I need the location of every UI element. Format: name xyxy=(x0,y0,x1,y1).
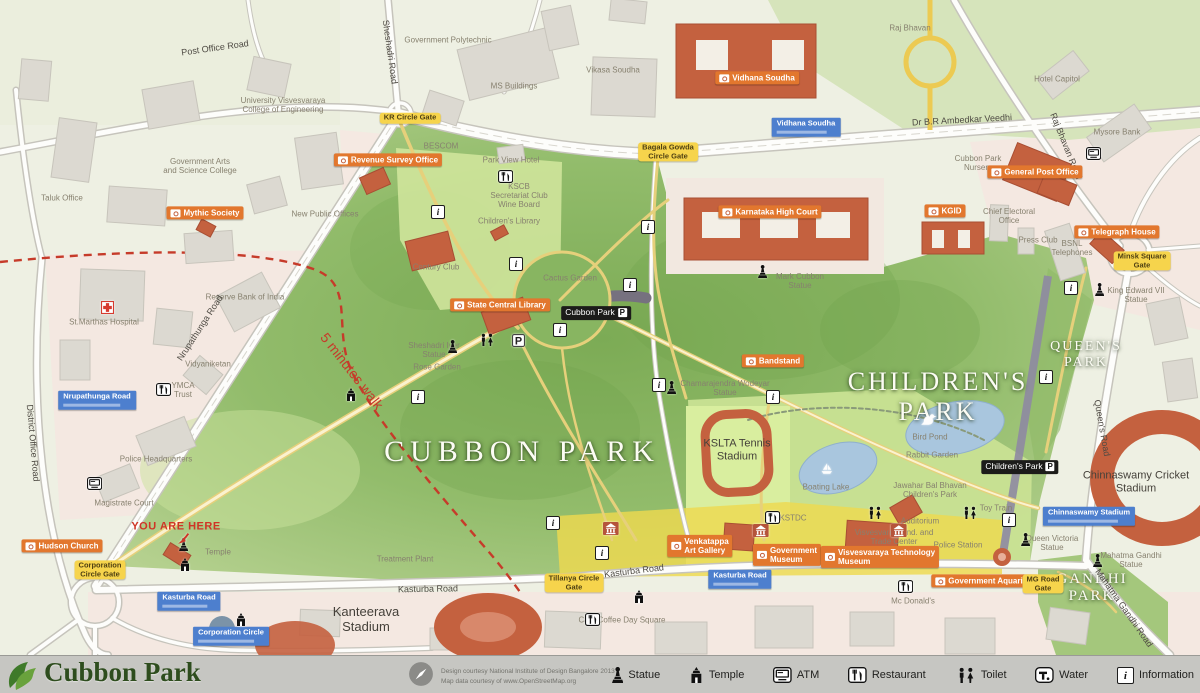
credits-text: Design courtesy National Institute of De… xyxy=(441,667,615,687)
restaurant-icon xyxy=(156,383,171,396)
water-icon xyxy=(1035,667,1054,683)
area-label: KSLTA TennisStadium xyxy=(703,437,770,462)
parking-label: Children's Park xyxy=(981,460,1058,474)
atm-icon xyxy=(1086,147,1101,160)
atm-icon xyxy=(773,667,792,683)
place-label: Hotel Capitol xyxy=(1034,74,1080,83)
credits-line-2: Map data courtesy of www.OpenStreetMap.o… xyxy=(441,677,615,687)
place-label: Bird Pond xyxy=(912,432,947,441)
place-label: KSTDC xyxy=(779,513,806,522)
temple-icon xyxy=(689,667,704,683)
atm-icon xyxy=(87,477,102,490)
area-label: Chinnaswamy CricketStadium xyxy=(1083,469,1189,494)
temple-icon xyxy=(345,388,357,401)
information-icon: i xyxy=(766,390,780,404)
camera-icon xyxy=(991,168,1001,176)
cross-icon xyxy=(101,301,114,314)
poi-label: State Central Library xyxy=(450,298,550,311)
statue-icon xyxy=(1095,283,1104,296)
legend-label: Toilet xyxy=(981,669,1007,681)
parking-label: Cubbon Park xyxy=(561,306,631,320)
legend-label: Restaurant xyxy=(872,669,926,681)
camera-icon xyxy=(338,156,348,164)
poi-label: Revenue Survey Office xyxy=(334,153,442,166)
camera-icon xyxy=(757,551,767,559)
poi-label: Telegraph House xyxy=(1074,225,1159,238)
camera-icon xyxy=(929,207,939,215)
camera-icon xyxy=(26,542,36,550)
poi-label: Vidhana Soudha xyxy=(715,71,799,84)
poi-label: Mythic Society xyxy=(166,206,243,219)
information-icon: i xyxy=(1039,370,1053,384)
place-label: Rabbit Garden xyxy=(906,450,958,459)
temple-icon xyxy=(179,558,191,571)
museum-icon xyxy=(603,522,619,535)
cubbon-park-map-page: CUBBON PARKCHILDREN'SPARKQUEEN'SPARKGAND… xyxy=(0,0,1200,693)
legend-item-statue: Statue xyxy=(612,667,660,683)
museum-icon xyxy=(891,524,907,537)
camera-icon xyxy=(746,357,756,365)
credits-line-1: Design courtesy National Institute of De… xyxy=(441,667,615,677)
map-viewport: CUBBON PARKCHILDREN'SPARKQUEEN'SPARKGAND… xyxy=(0,0,1200,655)
information-icon: i xyxy=(652,378,666,392)
camera-icon xyxy=(722,208,732,216)
place-label: Magistrate Court xyxy=(94,498,153,507)
information-icon: i xyxy=(1064,281,1078,295)
statue-icon xyxy=(448,340,457,353)
legend-item-information: iInformation xyxy=(1117,666,1194,685)
place-label: Rose Garden xyxy=(413,362,461,371)
place-label: BSNLTelephones xyxy=(1052,239,1093,257)
compass-icon xyxy=(408,661,434,692)
statue-icon xyxy=(758,265,767,278)
legend-item-restaurant: Restaurant xyxy=(848,667,925,683)
poi-label: Hudson Church xyxy=(22,539,103,552)
camera-icon xyxy=(671,542,681,550)
transit-label: Nrupathunga Road xyxy=(58,391,136,410)
place-label: Taluk Office xyxy=(41,193,83,202)
information-icon: i xyxy=(553,323,567,337)
restaurant-icon xyxy=(765,511,780,524)
poi-label: Bandstand xyxy=(742,354,804,367)
statue-icon xyxy=(1093,554,1102,567)
place-label: Boating Lake xyxy=(803,482,850,491)
camera-icon xyxy=(719,74,729,82)
place-label: Auditorium xyxy=(901,516,939,525)
poi-label: KGID xyxy=(925,204,966,217)
gate-label: Tillanya CircleGate xyxy=(545,573,604,592)
map-title: Cubbon Park xyxy=(44,657,201,688)
place-label: Police Station xyxy=(934,540,983,549)
poi-label: Karnataka High Court xyxy=(718,205,821,218)
transit-label: Kasturba Road xyxy=(157,592,220,611)
restaurant-icon xyxy=(585,613,600,626)
poi-label: Visvesvaraya TechnologyMuseum xyxy=(821,546,939,568)
information-icon: i xyxy=(411,390,425,404)
svg-text:P: P xyxy=(515,335,522,347)
road-label: Kasturba Road xyxy=(398,583,458,594)
leaf-logo-icon xyxy=(4,658,44,693)
place-label: Chamarajendra WodeyarStatue xyxy=(680,379,769,397)
footer-bar: Cubbon Park Design courtesy National Ins… xyxy=(0,655,1200,693)
gate-label: KR Circle Gate xyxy=(380,113,441,124)
place-label: Raj Bhavan xyxy=(889,23,930,32)
legend-label: Information xyxy=(1139,669,1194,681)
park-title: CUBBON PARK xyxy=(384,435,660,470)
information-icon: i xyxy=(1002,513,1016,527)
information-icon: i xyxy=(509,257,523,271)
restaurant-icon xyxy=(898,580,913,593)
map-annotation: YOU ARE HERE xyxy=(131,521,220,534)
place-label: Queen VictoriaStatue xyxy=(1026,534,1079,552)
information-icon: i xyxy=(641,220,655,234)
legend: StatueTempleATMRestaurantToiletWateriInf… xyxy=(612,656,1194,693)
boat-icon xyxy=(819,462,835,475)
road-label: Post Office Road xyxy=(181,38,250,58)
road-label: Kasturba Road xyxy=(604,562,665,580)
duck-icon xyxy=(920,413,938,426)
poi-label: GovernmentMuseum xyxy=(753,544,821,566)
museum-icon xyxy=(753,524,769,537)
place-label: Children's Library xyxy=(478,216,540,225)
place-label: Chief ElectoralOffice xyxy=(983,207,1035,225)
camera-icon xyxy=(170,209,180,217)
legend-item-toilet: Toilet xyxy=(955,667,1007,683)
information-icon: i xyxy=(1117,666,1134,685)
legend-item-temple: Temple xyxy=(689,667,744,683)
transit-label: Corporation Circle xyxy=(193,627,269,646)
place-label: MS Buildings xyxy=(491,81,538,90)
legend-label: ATM xyxy=(797,669,819,681)
place-label: Police Headquarters xyxy=(120,454,192,463)
arrow-icon xyxy=(177,532,190,545)
legend-label: Temple xyxy=(709,669,744,681)
park-title: QUEEN'SPARK xyxy=(1050,339,1122,371)
gate-label: MG RoadGate xyxy=(1023,574,1064,593)
camera-icon xyxy=(454,301,464,309)
place-label: Vikasa Soudha xyxy=(586,65,640,74)
legend-item-atm: ATM xyxy=(773,667,819,683)
place-label: New Public Offices xyxy=(292,209,359,218)
place-label: Mc Donald's xyxy=(891,596,935,605)
place-label: KSCBSecretariat ClubWine Board xyxy=(490,182,547,210)
information-icon: i xyxy=(431,205,445,219)
gate-label: Bagala GowdaCircle Gate xyxy=(638,142,698,161)
place-label: Government Polytechnic xyxy=(404,35,491,44)
camera-icon xyxy=(935,577,945,585)
place-label: Temple xyxy=(205,547,231,556)
restaurant-icon xyxy=(848,667,867,683)
map-labels-layer: CUBBON PARKCHILDREN'SPARKQUEEN'SPARKGAND… xyxy=(0,0,1200,655)
road-label: Sheshadri Road xyxy=(380,19,399,84)
legend-item-water: Water xyxy=(1035,667,1088,683)
parking-icon: P xyxy=(512,334,525,347)
transit-label: Kasturba Road xyxy=(708,570,771,589)
place-label: Mysore Bank xyxy=(1094,127,1141,136)
gate-label: Minsk SquareGate xyxy=(1114,251,1171,270)
toilet-icon xyxy=(961,506,978,519)
toilet-icon xyxy=(955,667,976,683)
road-label: Dr B.R Ambedkar Veedhi xyxy=(912,112,1012,128)
poi-label: VenkatappaArt Gallery xyxy=(667,535,732,557)
poi-label: General Post Office xyxy=(987,165,1082,178)
transit-label: Chinnaswamy Stadium xyxy=(1043,507,1135,526)
area-label: KanteeravaStadium xyxy=(333,605,400,635)
place-label: Century Club xyxy=(413,262,460,271)
place-label: Toy Train xyxy=(980,503,1012,512)
place-label: King Edward VIIStatue xyxy=(1107,286,1164,304)
place-label: Cactus Garden xyxy=(543,273,597,282)
road-label: District Office Road xyxy=(24,404,41,482)
place-label: St.Marthas Hospital xyxy=(69,317,139,326)
legend-label: Water xyxy=(1059,669,1088,681)
statue-icon xyxy=(667,381,676,394)
information-icon: i xyxy=(623,278,637,292)
statue-icon xyxy=(1021,533,1030,546)
place-label: Mahatma GandhiStatue xyxy=(1100,551,1161,569)
place-label: BESCOM xyxy=(424,141,459,150)
place-label: Government Artsand Science College xyxy=(163,157,236,175)
place-label: Jawahar Bal BhavanChildren's Park xyxy=(893,481,966,499)
transit-label: Vidhana Soudha xyxy=(772,118,841,137)
camera-icon xyxy=(1078,228,1088,236)
statue-icon xyxy=(612,667,623,683)
place-label: Park View Hotel xyxy=(483,155,540,164)
road-label: Queen's Road xyxy=(1092,399,1112,457)
road-label: Nrupathunga Road xyxy=(175,293,225,362)
legend-label: Statue xyxy=(628,669,660,681)
restaurant-icon xyxy=(498,170,513,183)
temple-icon xyxy=(235,613,247,626)
camera-icon xyxy=(825,553,835,561)
toilet-icon xyxy=(478,333,495,346)
temple-icon xyxy=(633,590,645,603)
toilet-icon xyxy=(866,506,883,519)
gate-label: CorporationCircle Gate xyxy=(75,560,126,579)
credits: Design courtesy National Institute of De… xyxy=(408,661,615,692)
information-icon: i xyxy=(595,546,609,560)
place-label: Treatment Plant xyxy=(377,554,434,563)
place-label: Mark CubbonStatue xyxy=(776,272,824,290)
place-label: Vidyaniketan xyxy=(185,359,231,368)
place-label: University VisvesvarayaCollege of Engine… xyxy=(241,96,326,114)
information-icon: i xyxy=(546,516,560,530)
place-label: YMCATrust xyxy=(171,381,194,399)
